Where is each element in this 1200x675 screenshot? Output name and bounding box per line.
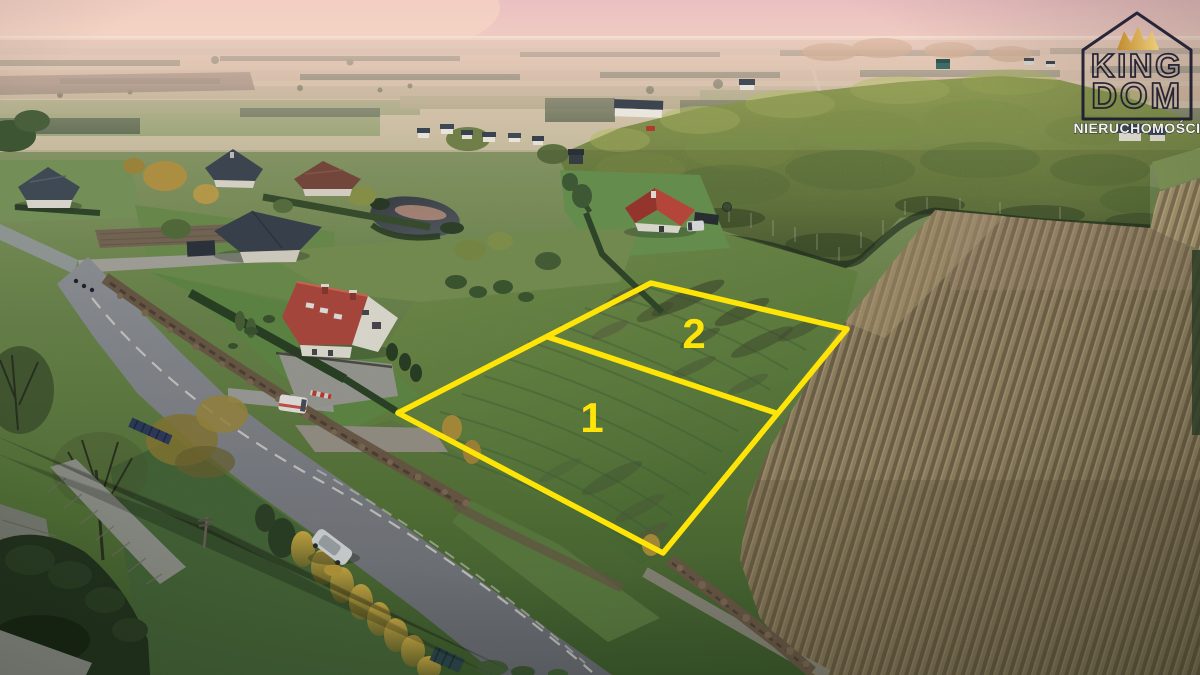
logo-subtitle-text: NIERUCHOMOŚCI <box>1073 119 1200 136</box>
plot-1-label: 1 <box>580 394 603 441</box>
plot-2-label: 2 <box>682 310 705 357</box>
aerial-photo: 1 2 KING DOM NIERUCHOMOŚCI <box>0 0 1200 675</box>
vignette <box>0 0 1200 675</box>
logo-dom-text: DOM <box>1091 75 1183 116</box>
aerial-photo-canvas: 1 2 KING DOM NIERUCHOMOŚCI <box>0 0 1200 675</box>
